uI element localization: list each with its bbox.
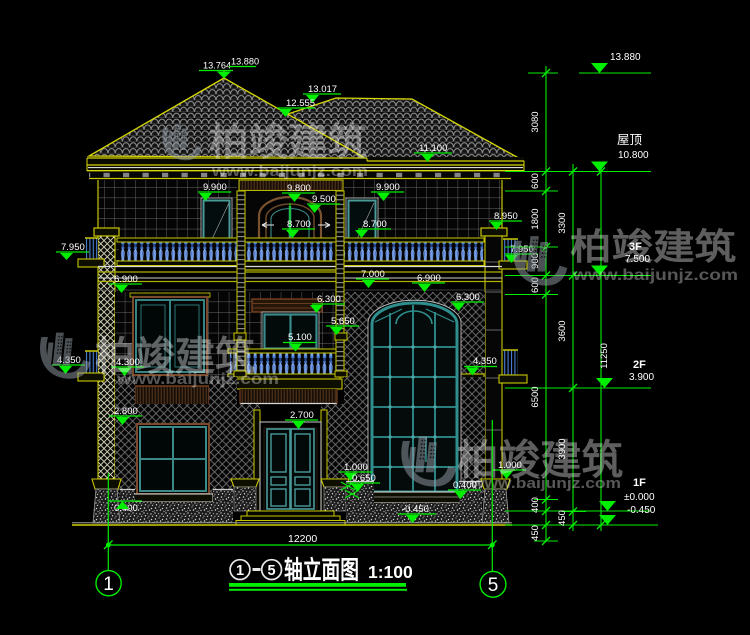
svg-text:±0.000: ±0.000 <box>624 492 655 503</box>
svg-text:柏竣建筑: 柏竣建筑 <box>209 122 367 164</box>
svg-text:6500: 6500 <box>530 386 541 407</box>
svg-text:9.900: 9.900 <box>376 182 400 193</box>
svg-text:400: 400 <box>530 497 541 513</box>
svg-text:2.700: 2.700 <box>290 410 314 421</box>
svg-text:1:100: 1:100 <box>368 562 413 582</box>
svg-text:1F: 1F <box>633 477 646 489</box>
svg-text:8.700: 8.700 <box>363 219 387 230</box>
svg-text:10.800: 10.800 <box>618 150 649 161</box>
svg-text:1: 1 <box>236 563 244 579</box>
svg-text:8.950: 8.950 <box>494 211 518 222</box>
svg-text:-0.450: -0.450 <box>627 505 656 516</box>
svg-text:13.764: 13.764 <box>203 61 231 71</box>
svg-text:www.baijunjz.com: www.baijunjz.com <box>116 371 279 388</box>
svg-text:3600: 3600 <box>557 320 568 341</box>
svg-text:www.baijunjz.com: www.baijunjz.com <box>211 163 368 180</box>
svg-text:11250: 11250 <box>599 343 610 369</box>
svg-text:1.000: 1.000 <box>344 462 368 473</box>
svg-text:9.500: 9.500 <box>312 194 336 205</box>
svg-text:4.350: 4.350 <box>473 356 497 367</box>
svg-text:600: 600 <box>530 173 541 189</box>
svg-text:6.900: 6.900 <box>417 273 441 284</box>
svg-text:-0.450: -0.450 <box>402 504 429 515</box>
svg-text:12.555: 12.555 <box>286 98 315 109</box>
svg-text:9.800: 9.800 <box>287 183 311 194</box>
svg-text:13.880: 13.880 <box>610 52 641 63</box>
svg-text:3300: 3300 <box>557 212 568 233</box>
svg-text:9.900: 9.900 <box>203 182 227 193</box>
svg-text:8.700: 8.700 <box>287 219 311 230</box>
svg-text:5: 5 <box>488 575 499 596</box>
svg-text:屋顶: 屋顶 <box>617 133 643 147</box>
svg-text:www.baijunjz.com: www.baijunjz.com <box>572 267 738 284</box>
svg-text:0.650: 0.650 <box>352 473 376 484</box>
svg-text:3080: 3080 <box>530 111 541 132</box>
svg-text:6.300: 6.300 <box>456 292 480 303</box>
svg-text:6.900: 6.900 <box>114 274 138 285</box>
svg-text:450: 450 <box>530 525 541 541</box>
svg-text:2F: 2F <box>633 359 646 371</box>
svg-text:2.800: 2.800 <box>114 406 138 417</box>
svg-text:5.650: 5.650 <box>331 316 355 327</box>
svg-text:13.880: 13.880 <box>231 57 259 67</box>
svg-text:1800: 1800 <box>530 208 541 229</box>
svg-text:450: 450 <box>557 510 568 526</box>
svg-text:1: 1 <box>103 574 114 595</box>
svg-text:12200: 12200 <box>288 533 317 545</box>
svg-text:7.000: 7.000 <box>361 269 385 280</box>
svg-text:7.950: 7.950 <box>61 242 85 253</box>
svg-text:11.100: 11.100 <box>419 143 447 154</box>
svg-text:5: 5 <box>268 563 276 579</box>
svg-text:轴立面图: 轴立面图 <box>284 556 359 585</box>
svg-text:5.100: 5.100 <box>288 332 312 343</box>
svg-text:柏竣建筑: 柏竣建筑 <box>570 226 736 267</box>
svg-text:3.900: 3.900 <box>629 372 654 383</box>
svg-text:6.300: 6.300 <box>317 294 341 305</box>
svg-text:13.017: 13.017 <box>308 84 337 95</box>
